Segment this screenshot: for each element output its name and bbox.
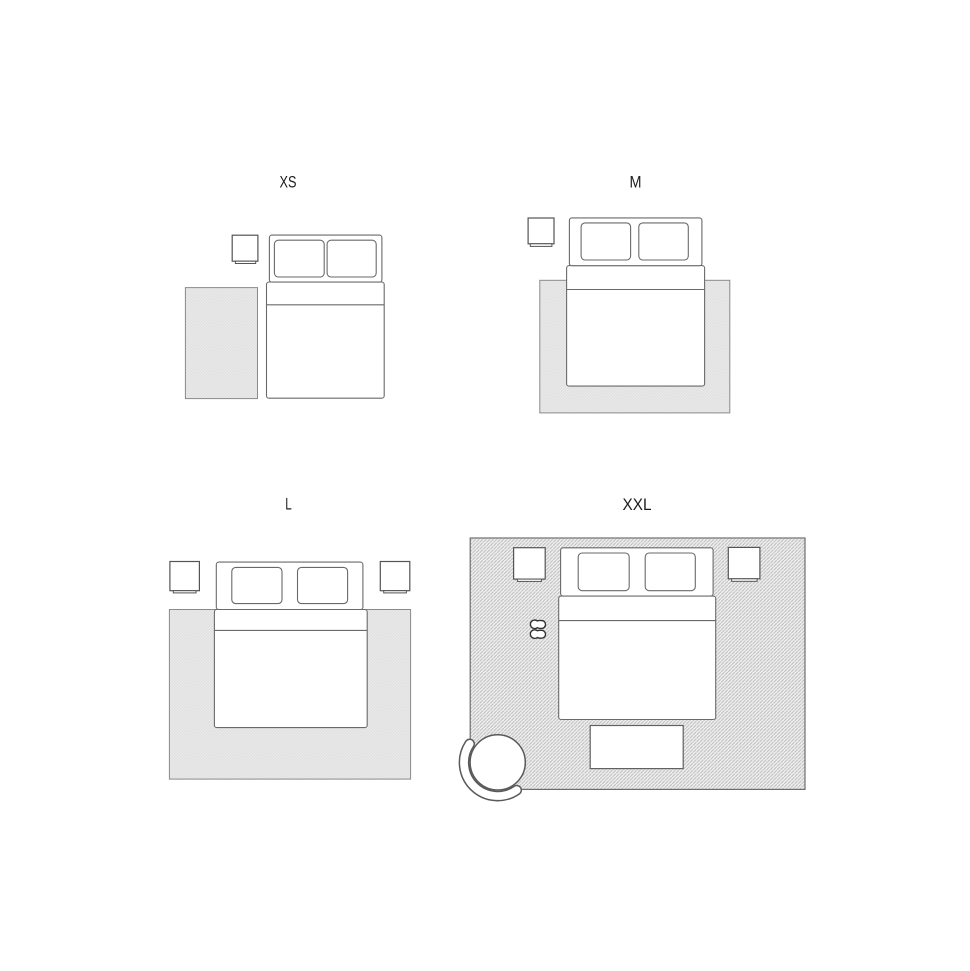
svg-text:M: M [630, 174, 642, 192]
svg-text:L: L [285, 496, 292, 514]
svg-text:XS: XS [280, 174, 297, 192]
svg-text:XXL: XXL [623, 496, 652, 514]
